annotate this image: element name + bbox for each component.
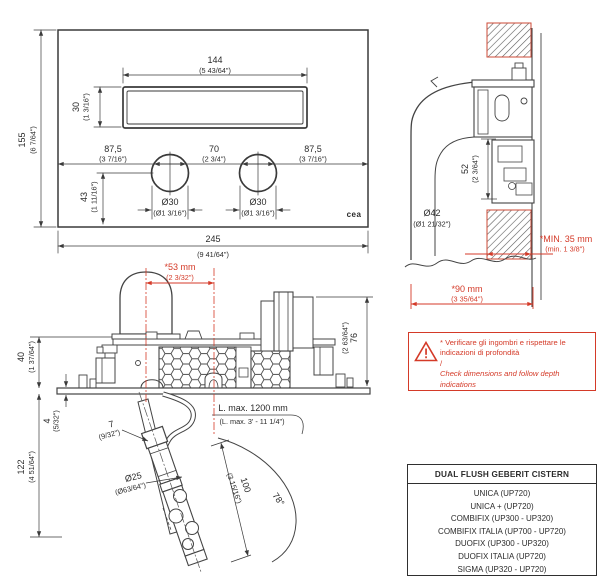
flush-slot-inner xyxy=(127,91,303,124)
depth-warning-box: * Verificare gli ingombri e rispettare l… xyxy=(408,332,596,391)
table-row: UNICA + (UP720) xyxy=(408,501,596,514)
dim-slot-width-in: (5 43/64") xyxy=(199,66,231,75)
dim-slot-width-mm: 144 xyxy=(207,55,222,65)
dim-right-span-in: (3 7/16") xyxy=(299,155,327,164)
dim-center-span-mm: 70 xyxy=(209,144,219,154)
dim-recess-mm: 52 xyxy=(460,164,470,174)
dim-right-span-mm: 87,5 xyxy=(304,144,322,154)
dim-pipe-dia-in: (Ø1 21/32") xyxy=(413,220,450,229)
dim-plate-thickness-in: (5/32") xyxy=(52,410,61,432)
warning-line-en-2: indications xyxy=(440,380,566,390)
warning-line-it-2: indicazioni di profondità xyxy=(440,348,566,358)
table-row: DUOFIX ITALIA (UP720) xyxy=(408,551,596,564)
dim-recess-in: (2 3/64") xyxy=(471,155,480,183)
dim-plate-thickness-mm: 4 xyxy=(42,418,52,423)
table-row: DUOFIX (UP300 - UP320) xyxy=(408,538,596,551)
dim-right-button-dia-in: (Ø1 3/16") xyxy=(241,209,274,218)
dim-body-height-mm: 76 xyxy=(349,333,359,343)
mechanism-structure xyxy=(57,272,370,572)
warning-triangle-icon xyxy=(414,341,440,367)
warning-line-it-1: * Verificare gli ingombri e rispettare l… xyxy=(440,338,566,348)
warning-line-en-1: Check dimensions and follow depth xyxy=(440,369,566,379)
dim-drop-mm: 122 xyxy=(16,459,26,474)
dim-button-offset-mm: 43 xyxy=(79,192,89,202)
dim-right-button-dia-mm: Ø30 xyxy=(249,197,266,207)
dim-frame-height-mm: 40 xyxy=(16,352,26,362)
table-header: DUAL FLUSH GEBERIT CISTERN xyxy=(408,465,596,484)
dim-gap-in: (9/32") xyxy=(98,427,121,441)
dim-offset53-mm: *53 mm xyxy=(164,262,195,272)
dim-button-offset-in: (1 11/16") xyxy=(90,181,99,212)
table-row: UNICA (UP720) xyxy=(408,488,596,501)
cistern-compatibility-table: DUAL FLUSH GEBERIT CISTERN UNICA (UP720)… xyxy=(407,464,597,576)
dim-slot-height-mm: 30 xyxy=(71,102,81,112)
dim-slot-height-in: (1 3/16") xyxy=(82,93,91,121)
side-view: 52 (2 3/64") Ø42 (Ø1 21/32") *MIN. 35 mm… xyxy=(405,23,592,309)
warning-text: * Verificare gli ingombri e rispettare l… xyxy=(440,338,566,390)
table-rows: UNICA (UP720) UNICA + (UP720) COMBIFIX (… xyxy=(408,484,596,576)
dim-left-button-dia-in: (Ø1 3/16") xyxy=(153,209,186,218)
mechanism-view: *53 mm (2 3/32") 76 (2 63/64") 40 (1 37/… xyxy=(16,262,373,572)
dim-frame-height-in: (1 37/64") xyxy=(27,341,36,373)
dim-left-span-in: (3 7/16") xyxy=(99,155,127,164)
dim-min-depth-mm: *MIN. 35 mm xyxy=(540,234,593,244)
table-row: SIGMA (UP320 - UP720) xyxy=(408,564,596,577)
front-view: 144 (5 43/64") 30 (1 3/16") 155 (6 7/64"… xyxy=(17,30,368,259)
wall-hatch-bottom xyxy=(487,210,531,259)
dim-left-button-dia-mm: Ø30 xyxy=(161,197,178,207)
warning-line-separator: / xyxy=(440,359,566,369)
dim-swing-angle: 78° xyxy=(270,491,286,508)
dim-body-height-in: (2 63/64") xyxy=(341,322,350,354)
dim-offset53-in: (2 3/32") xyxy=(166,273,194,282)
dim-plate-width-in: (9 41/64") xyxy=(197,250,229,259)
dim-plate-width-mm: 245 xyxy=(205,234,220,244)
dim-depth-in: (3 35/64") xyxy=(451,295,483,304)
dim-drop-in: (4 51/64") xyxy=(27,451,36,483)
table-row: COMBIFIX (UP300 - UP320) xyxy=(408,513,596,526)
dim-min-depth-in: (min. 1 3/8") xyxy=(545,245,585,254)
dim-plate-height-in: (6 7/64") xyxy=(29,126,38,154)
wall-hatch-top xyxy=(487,23,531,57)
brand-logo: cea xyxy=(347,210,362,219)
dim-hose-length-line2: (L. max. 3' - 11 1/4") xyxy=(219,417,284,426)
dim-depth-mm: *90 mm xyxy=(451,284,482,294)
technical-drawing-page: 144 (5 43/64") 30 (1 3/16") 155 (6 7/64"… xyxy=(0,0,609,588)
table-row: COMBIFIX ITALIA (UP700 - UP720) xyxy=(408,526,596,539)
dim-left-span-mm: 87,5 xyxy=(104,144,122,154)
dim-plate-height-mm: 155 xyxy=(17,132,27,147)
dim-tube-len-in: (3 15/16") xyxy=(225,472,244,505)
dim-pipe-dia-mm: Ø42 xyxy=(423,208,440,218)
dim-hose-length-line1: L. max. 1200 mm xyxy=(218,403,288,413)
dim-center-span-in: (2 3/4") xyxy=(202,155,226,164)
